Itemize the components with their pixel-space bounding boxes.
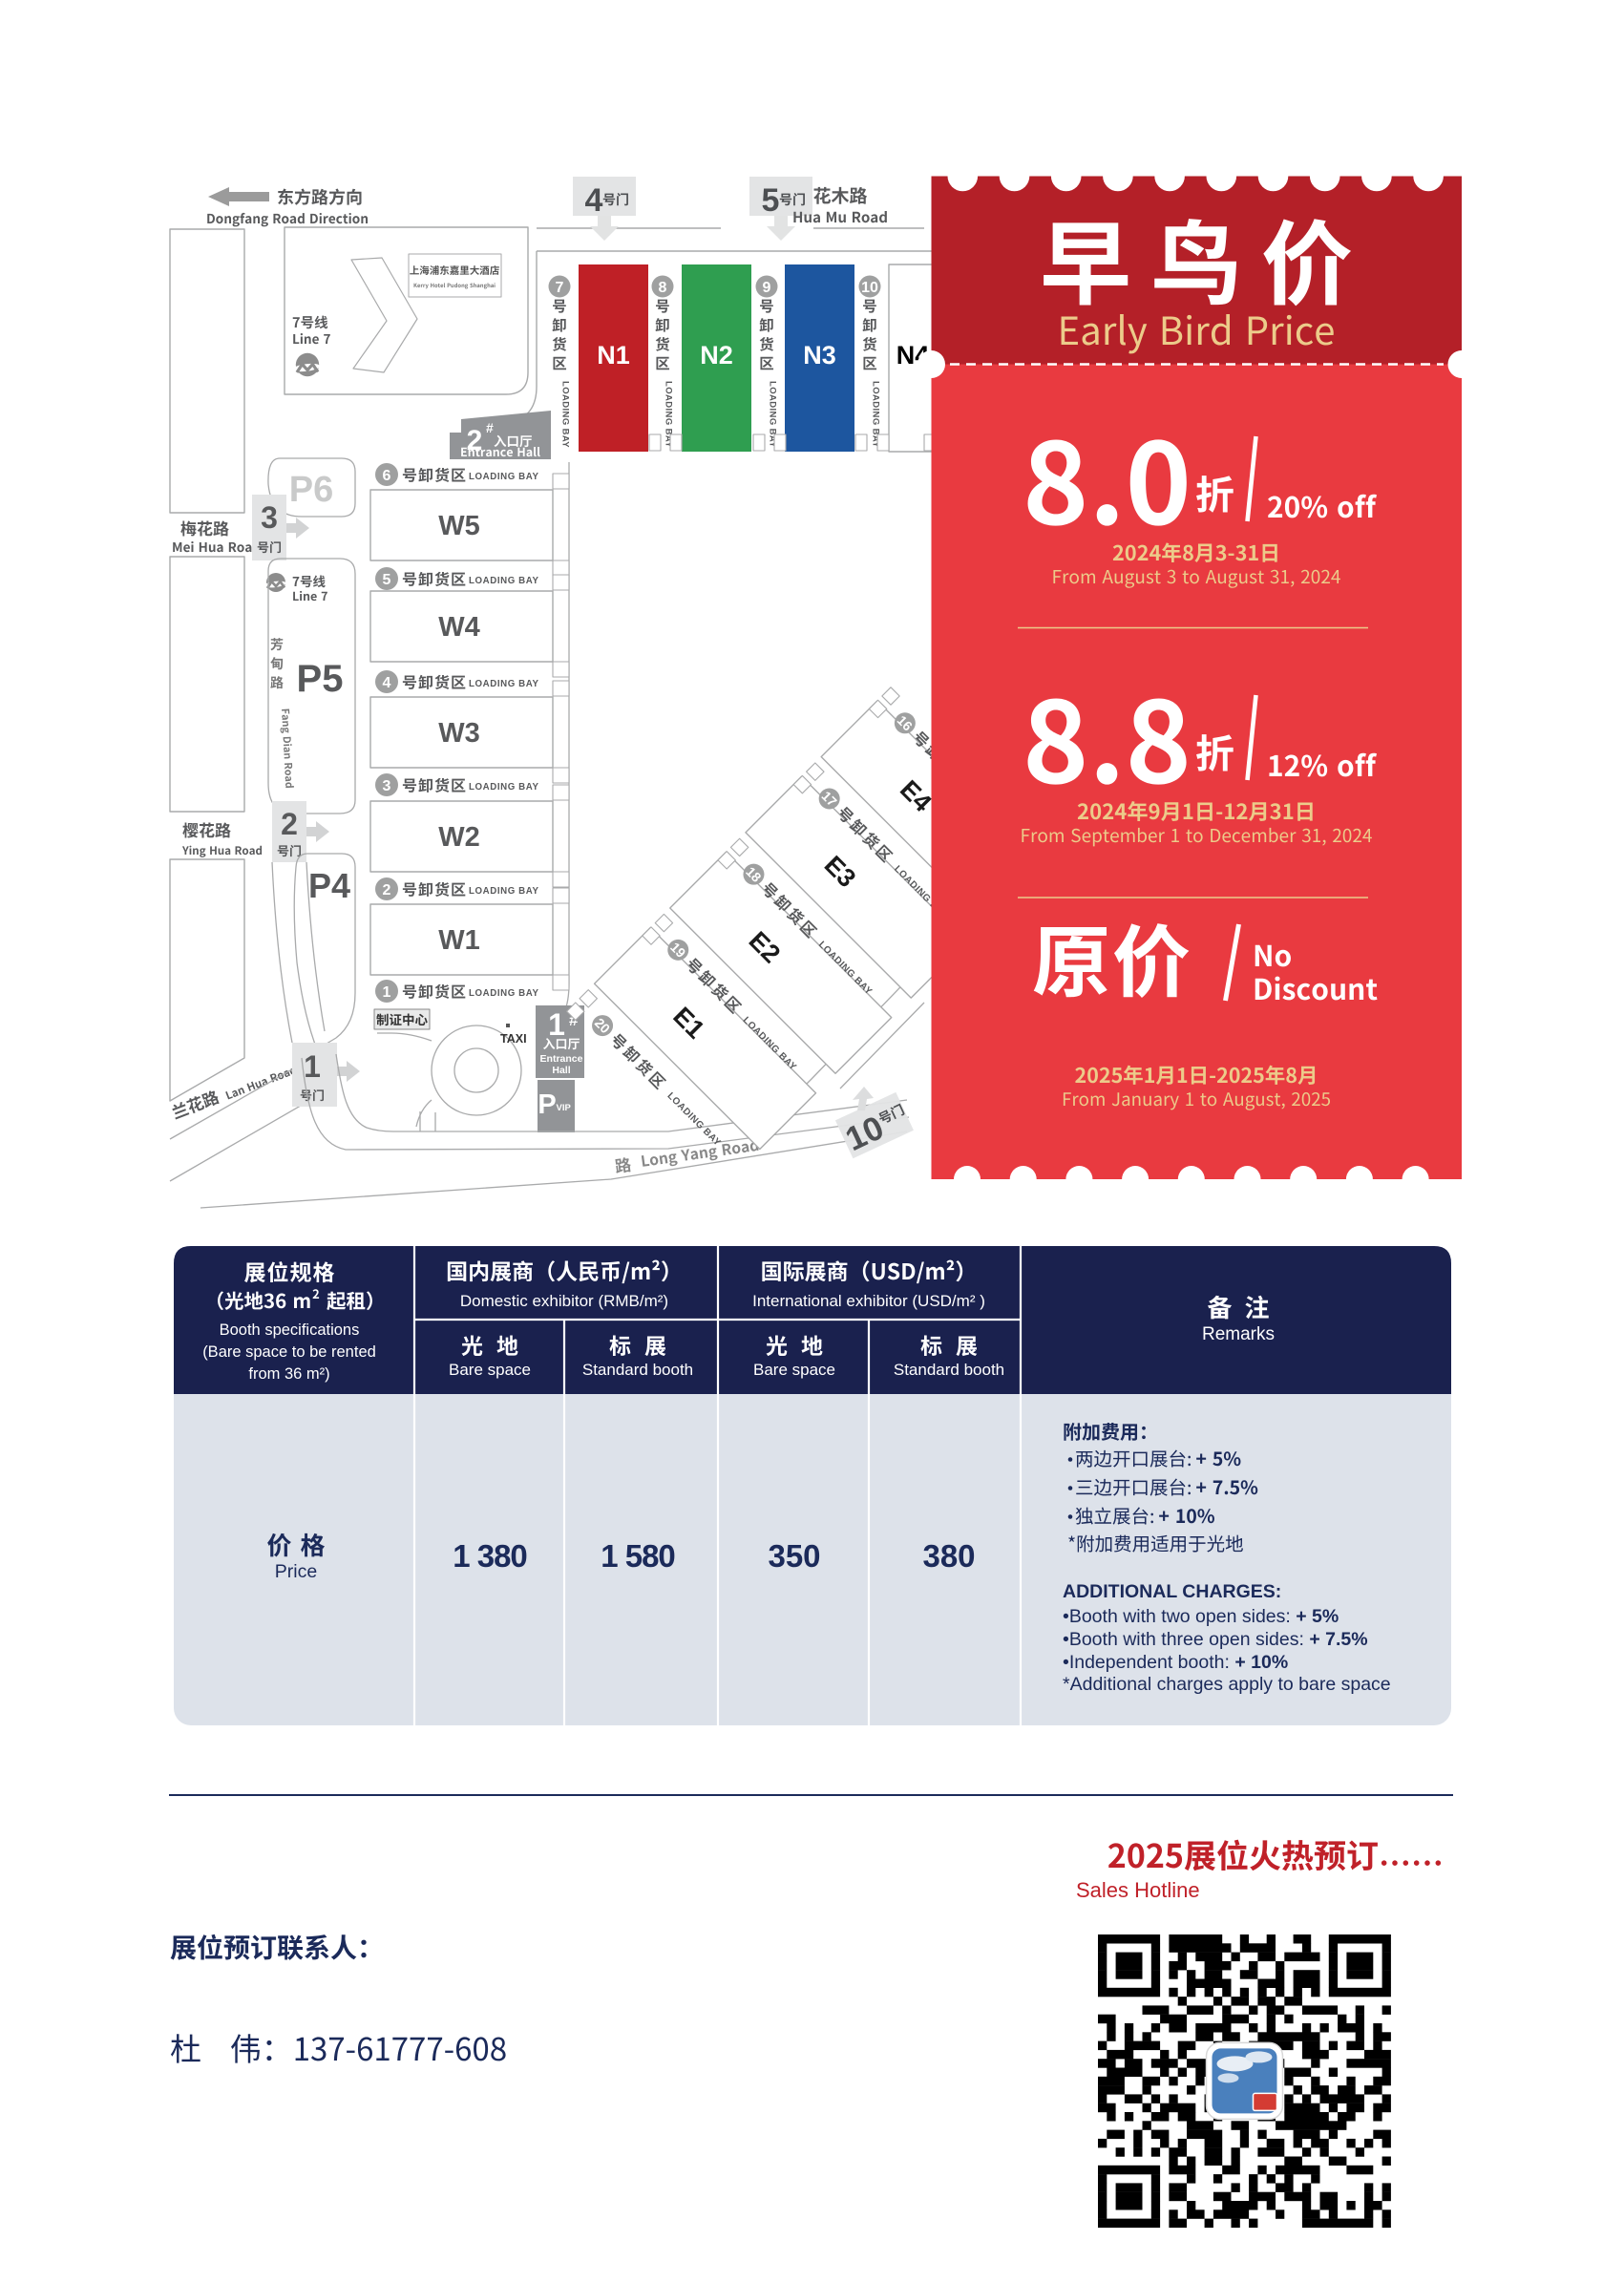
svg-text:Bare space: Bare space [449, 1361, 531, 1379]
svg-text:1: 1 [383, 984, 391, 1001]
svg-text:LOADING BAY: LOADING BAY [469, 472, 539, 482]
svg-text:P: P [538, 1089, 556, 1120]
svg-text:1 380: 1 380 [453, 1538, 527, 1574]
svg-text:Domestic exhibitor (RMB/m²): Domestic exhibitor (RMB/m²) [460, 1292, 668, 1310]
svg-text:3: 3 [261, 500, 278, 535]
svg-text:TAXI: TAXI [500, 1032, 527, 1046]
svg-text:N1: N1 [597, 341, 630, 370]
svg-text:N3: N3 [803, 341, 836, 370]
svg-text:•Booth with three open sides:: •Booth with three open sides: + 7.5% [1063, 1629, 1368, 1650]
svg-text:350: 350 [768, 1538, 820, 1574]
svg-text:Booth specifications: Booth specifications [220, 1321, 360, 1339]
svg-text:International exhibitor (USD/m: International exhibitor (USD/m² ) [752, 1292, 985, 1310]
svg-text:Sales Hotline: Sales Hotline [1076, 1878, 1200, 1902]
svg-text:ADDITIONAL CHARGES:: ADDITIONAL CHARGES: [1063, 1581, 1281, 1602]
svg-text:P4: P4 [308, 866, 350, 905]
svg-text:Entrance: Entrance [540, 1053, 583, 1065]
svg-text:LOADING BAY: LOADING BAY [560, 381, 571, 448]
svg-text:Hall: Hall [552, 1065, 570, 1076]
svg-text:P5: P5 [297, 658, 344, 700]
svg-text:8: 8 [659, 280, 667, 296]
svg-text:5: 5 [762, 182, 780, 219]
svg-text:N2: N2 [700, 341, 733, 370]
svg-text:2: 2 [281, 807, 298, 841]
svg-text:Standard booth: Standard booth [582, 1361, 693, 1379]
svg-text:•Independent booth: + 10%: •Independent booth: + 10% [1063, 1652, 1288, 1673]
svg-text:*Additional charges apply to b: *Additional charges apply to bare space [1063, 1674, 1391, 1695]
svg-text:P6: P6 [289, 470, 333, 510]
svg-text:•Booth with two open sides: +: •Booth with two open sides: + 5% [1063, 1606, 1339, 1627]
svg-text:from 36 m²): from 36 m²) [248, 1365, 329, 1383]
svg-text:LOADING BAY: LOADING BAY [469, 782, 539, 793]
svg-text:4: 4 [383, 675, 391, 691]
svg-text:3: 3 [383, 778, 391, 794]
svg-text:W5: W5 [438, 511, 480, 541]
svg-text:LOADING BAY: LOADING BAY [469, 886, 539, 897]
svg-text:9: 9 [763, 280, 771, 296]
svg-text:5: 5 [383, 572, 391, 588]
svg-text:Remarks: Remarks [1202, 1324, 1275, 1344]
svg-text:W2: W2 [438, 822, 480, 853]
svg-text:LOADING BAY: LOADING BAY [469, 988, 539, 999]
svg-text:W4: W4 [438, 612, 480, 643]
svg-text:7: 7 [556, 280, 564, 296]
svg-text:Standard booth: Standard booth [894, 1361, 1004, 1379]
svg-text:W1: W1 [438, 925, 480, 956]
svg-text:Price: Price [275, 1561, 317, 1582]
svg-text:(Bare space to be rented: (Bare space to be rented [202, 1343, 376, 1361]
svg-text:1 580: 1 580 [601, 1538, 675, 1574]
svg-text:#: # [486, 420, 494, 435]
svg-text:1: 1 [304, 1049, 321, 1084]
svg-text:VIP: VIP [557, 1103, 572, 1113]
svg-text:380: 380 [922, 1538, 975, 1574]
svg-text:W3: W3 [438, 718, 480, 749]
svg-text:LOADING BAY: LOADING BAY [469, 576, 539, 586]
svg-text:Bare space: Bare space [753, 1361, 835, 1379]
svg-text:6: 6 [383, 468, 391, 484]
svg-text:2: 2 [383, 882, 391, 898]
svg-text:10: 10 [861, 280, 878, 296]
svg-text:4: 4 [585, 182, 603, 219]
svg-text:1: 1 [548, 1007, 565, 1042]
svg-text:LOADING BAY: LOADING BAY [469, 679, 539, 689]
